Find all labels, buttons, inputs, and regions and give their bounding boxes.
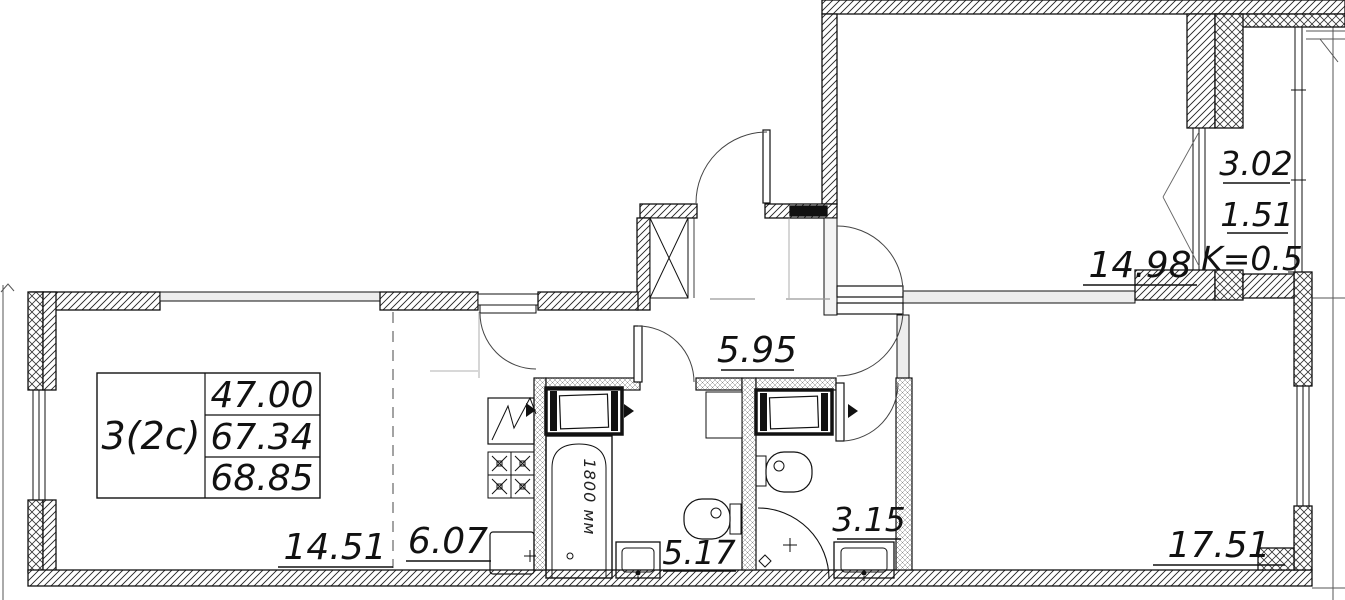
wall-bathroom-top-b bbox=[696, 378, 742, 390]
wall-south bbox=[28, 570, 1312, 586]
wall-west-pillar-bot-out bbox=[28, 500, 43, 572]
wall-entry-left bbox=[822, 14, 837, 204]
wall-wc-right bbox=[896, 378, 912, 570]
wall-east-pillar-top bbox=[1294, 272, 1312, 386]
wall-bathroom-left bbox=[534, 378, 546, 570]
wall-west-pillar-top-in bbox=[43, 292, 56, 390]
wall-west-pillar-top-out bbox=[28, 292, 43, 390]
balcony-area-label: 3.02 bbox=[1219, 144, 1292, 183]
window-room-east bbox=[1294, 386, 1312, 506]
balcony-reduced-label: 1.51 bbox=[1220, 195, 1293, 234]
room-label-bedroom: 14.98 bbox=[1088, 245, 1191, 286]
wall-balcony-divider bbox=[1187, 14, 1215, 128]
room-label-room: 17.51 bbox=[1167, 525, 1270, 566]
area-total: 68.85 bbox=[210, 458, 313, 499]
wall-wc-top bbox=[756, 378, 836, 390]
bathtub-length-label: 1800 мм bbox=[580, 459, 599, 536]
room-label-living: 14.51 bbox=[283, 527, 386, 568]
apartment-type-label: 3(2c) bbox=[102, 414, 201, 458]
room-label-wc: 3.15 bbox=[832, 500, 905, 539]
apartment-info-table: 3(2c) 47.00 67.34 68.85 bbox=[97, 373, 320, 499]
room-label-bathroom: 5.17 bbox=[662, 533, 735, 572]
entry-threshold bbox=[790, 206, 827, 216]
wall-hall-room bbox=[897, 315, 909, 378]
floor-plan: 3(2c) 47.00 67.34 68.85 14.51 6.07 5.17 … bbox=[0, 0, 1345, 600]
vent-shaft bbox=[650, 218, 694, 298]
wall-balcony-divider-ins bbox=[1215, 14, 1243, 128]
area-living-total: 47.00 bbox=[210, 375, 313, 416]
wall-north-thin bbox=[160, 292, 380, 301]
wall-north-b bbox=[380, 292, 478, 310]
room-label-kitchen: 6.07 bbox=[408, 521, 488, 562]
wall-top bbox=[822, 0, 1345, 14]
plumbing-shaft-box bbox=[706, 392, 742, 438]
balcony-coef-label: K=0.5 bbox=[1201, 239, 1303, 278]
wall-bath-wc bbox=[742, 378, 756, 570]
stove bbox=[488, 452, 534, 498]
wall-bedroom-bottom bbox=[903, 291, 1135, 303]
wall-hall-bedroom bbox=[824, 218, 837, 315]
wall-north-c bbox=[538, 292, 638, 310]
wall-west-pillar-bot-in bbox=[43, 500, 56, 572]
wall-entry-a bbox=[640, 204, 697, 218]
area-apartment: 67.34 bbox=[210, 417, 313, 458]
wall-east-pillar-bot bbox=[1294, 506, 1312, 570]
kitchen-door-opening bbox=[478, 294, 538, 305]
floor-plan-svg: 3(2c) 47.00 67.34 68.85 14.51 6.07 5.17 … bbox=[0, 0, 1345, 600]
room-label-hall: 5.95 bbox=[717, 330, 797, 371]
wall-shaft-side bbox=[637, 218, 650, 310]
